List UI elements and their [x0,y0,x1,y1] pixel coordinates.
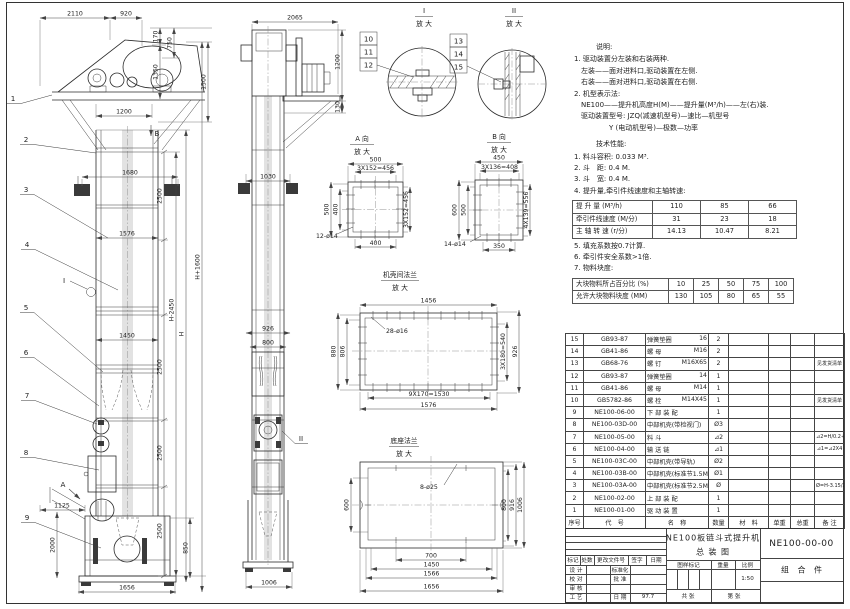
part-remark: 见发货清单 [815,358,845,370]
dim-label: 850 [183,542,190,554]
parts-row: 8 NE100-03D-00 中部机壳(带检视门) Ø3 [566,419,845,431]
part-remark [815,419,845,431]
part-total-weight [791,480,815,492]
table-row: 允许大块物料块度 (MM) 130 105 80 65 55 [573,291,794,303]
base-plate [79,576,176,582]
part-material [729,504,769,516]
parts-row: 5 NE100-03C-00 中部机壳(带导轨) Ø2 [566,455,845,467]
part-code: GB93-87 [584,370,646,382]
part-total-weight [791,504,815,516]
part-material [729,346,769,358]
part-total-weight [791,394,815,406]
part-unit-weight [769,382,791,394]
part-no: 15 [566,334,584,346]
part-unit-weight [769,419,791,431]
part-no: 5 [566,455,584,467]
hole-callout: 28-ø16 [386,328,408,335]
dim-label: 3X152=456 [403,191,410,228]
tech-list-pre: 1. 料斗容积: 0.033 M³.2. 斗 距: 0.4 M.3. 斗 宽: … [574,152,842,198]
dim-label: 800 [262,340,274,347]
part-balloon: 8 [24,448,29,457]
part-code: NE100-06-00 [584,407,646,419]
part-unit-weight [769,455,791,467]
part-code: GB5782-86 [584,394,646,406]
part-balloon: 2 [24,135,29,144]
motor [302,64,324,92]
detail-i-marker-label: I [63,276,65,285]
cell: 130 [669,291,694,303]
part-unit-weight [769,334,791,346]
part-no: 8 [566,419,584,431]
dim-label: 500 [461,204,468,216]
view-subtitle: 放 大 [392,283,408,292]
dim-label: 130 [335,101,342,113]
dim-label: 600 [344,499,351,511]
dim-label: 2500 [157,359,164,375]
dim-label: 1006 [517,497,524,513]
part-qty: Ø2 [709,455,729,467]
part-qty: 2 [709,346,729,358]
inspection-door [88,456,116,492]
table-row: 大块物料所占百分比 (%) 10 25 50 75 100 [573,278,794,290]
dim-label: 2500 [157,188,164,204]
part-material [729,443,769,455]
cell: 18 [749,213,797,225]
view-b-marker: B [155,129,160,138]
table-row: 牵引件线速度 (M/分) 31 23 18 [573,213,797,225]
role-label: 批 准 [614,575,627,583]
col-header: 代 号 [584,516,646,528]
cell: 110 [653,201,701,213]
dim-label: 1450 [424,562,440,569]
tech-line: 7. 物料块度: [574,263,842,274]
casing-flange-view: 机壳间法兰 放 大 1456 880 806 3X180=540 926 9X1… [331,270,520,411]
part-unit-weight [769,480,791,492]
part-qty: 1 [709,382,729,394]
part-name: 驱 动 装 置 [646,504,709,516]
tech-line: 3. 斗 宽: 0.4 M. [574,174,842,185]
view-a-enlarged: A 向 放 大 500 3X152=456 500 400 3X152=456 … [316,134,410,249]
note-line: 左装——面对进料口,驱动装置在左侧. [574,66,842,77]
part-name: 料 斗 [646,431,709,443]
part-qty: Ø [709,480,729,492]
note-line: 2. 机型表示法: [574,89,842,100]
dim-label: 1006 [261,580,277,587]
dim-label: 1125 [54,503,70,510]
date-value: 97.7 [642,594,654,600]
part-material [729,394,769,406]
part-name: 输 送 链 [646,443,709,455]
col-header: 数量 [709,516,729,528]
part-material [729,419,769,431]
part-no: 13 [566,358,584,370]
part-balloon: 15 [454,63,463,72]
scale-value: 1:50 [741,576,754,582]
role-label: 标准化 [612,566,629,574]
front-elevation-view: 2110 920 170 1350 750 1500 1200 1680 157… [7,11,212,595]
tech-line: 4. 提升量,牵引件线速度和主轴转速: [574,186,842,197]
dim-label: 3X152=456 [357,165,394,172]
part-no: 9 [566,407,584,419]
dim-label: 880 [331,346,338,358]
stamp-header: 重量 [717,561,728,569]
lump-size-table: 大块物料所占百分比 (%) 10 25 50 75 100 允许大块物料块度 (… [572,278,794,304]
dim-label: 1200 [116,109,132,116]
view-subtitle: 放 大 [396,449,412,458]
dim-label: 2065 [287,15,303,22]
part-material [729,334,769,346]
performance-table: 提 升 量 (M³/h) 110 85 66 牵引件线速度 (M/分) 31 2… [572,200,797,238]
bearing [241,45,252,61]
part-name: 中部机壳(带检视门) [646,419,709,431]
part-total-weight [791,407,815,419]
role-label: 审 核 [570,584,583,592]
detail-subtitle: 放 大 [506,19,522,28]
part-balloon: 7 [25,391,30,400]
part-remark [815,407,845,419]
part-total-weight [791,419,815,431]
hole-callout: 12-ø14 [316,233,338,240]
part-total-weight [791,358,815,370]
detail-view-i: I 放 大 10 11 12 [360,6,458,118]
part-material [729,431,769,443]
part-total-weight [791,370,815,382]
part-remark [815,346,845,358]
part-remark [815,382,845,394]
cell: 50 [719,278,744,290]
part-name: 中部机壳(标准节2.5M) [646,480,709,492]
part-remark [815,492,845,504]
head-hood-outline [52,40,205,100]
parts-row: 1 NE100-01-00 驱 动 装 置 1 [566,504,845,516]
boot-wheel [90,499,114,521]
cell: 25 [694,278,719,290]
dim-label: 700 [425,553,437,560]
part-total-weight [791,455,815,467]
platform [283,96,340,101]
dim-label: 1576 [421,402,437,409]
part-balloon: 12 [364,61,373,70]
col-header: 序号 [566,516,584,528]
flange-outline [360,313,497,390]
part-material [729,407,769,419]
col-header: 备 注 [815,516,845,528]
bolt-ticks [365,465,498,543]
drawing-subtitle: 总 装 图 [696,547,730,558]
parts-row: 7 NE100-05-00 料 斗 ⊿2 ⊿2=H/0.2+5.75 [566,431,845,443]
dim-label: 1656 [424,584,440,591]
drawing-canvas: 2110 920 170 1350 750 1500 1200 1680 157… [0,0,565,609]
parts-row: 10 GB5782-86 螺 栓M14X45 1 见发货清单 [566,394,845,406]
dim-label: 500 [324,204,331,216]
dim-label: 750 [167,37,174,49]
part-type: 组 合 件 [781,564,825,575]
part-balloon: 6 [24,348,29,357]
cell: 23 [701,213,749,225]
part-unit-weight [769,504,791,516]
dim-label: 9X170=1530 [409,391,450,398]
dim-label: 1566 [424,571,440,578]
wall-bracket [164,184,180,196]
part-name: 下 部 装 配 [646,407,709,419]
part-code: GB68-76 [584,358,646,370]
part-total-weight [791,468,815,480]
dim-label: 1456 [421,298,437,305]
part-total-weight [791,334,815,346]
part-unit-weight [769,468,791,480]
parts-row: 13 GB68-76 螺 钉M16X65 2 见发货清单 [566,358,845,370]
cell: 66 [749,201,797,213]
rev-header: 处数 [581,556,592,564]
dim-label: 2500 [157,523,164,539]
dim-label: H-2450 [169,299,176,322]
row-label: 允许大块物料块度 (MM) [573,291,669,303]
parts-row: 11 GB41-86 螺 母M14 1 [566,382,845,394]
rev-header: 日期 [650,556,661,564]
part-balloon: 5 [24,303,29,312]
note-line: 右装——面对进料口,驱动装置在右侧. [574,77,842,88]
dim-label: 1576 [119,231,135,238]
parts-row: 12 GB93-87 弹簧垫圈14 1 [566,370,845,382]
dim-label: 350 [493,243,505,250]
col-header: 单重 [769,516,791,528]
part-code: NE100-03D-00 [584,419,646,431]
detail-title: II [512,6,516,15]
sheet-count: 共 张 [682,592,695,600]
boot-sprocket [114,536,140,562]
dim-label: 500 [370,157,382,164]
hole-callout: 8-ø25 [420,484,438,491]
table-row: 主 轴 转 速 (r/分) 14.13 10.47 8.21 [573,226,797,238]
tech-list-post: 5. 填充系数按0.7计算.6. 牵引件安全系数>1倍.7. 物料块度: [574,241,842,275]
part-code: GB41-86 [584,382,646,394]
part-total-weight [791,431,815,443]
part-unit-weight [769,358,791,370]
view-title: 机壳间法兰 [383,270,417,279]
stamp-header: 图样标记 [677,561,699,569]
part-remark [815,504,845,516]
part-total-weight [791,492,815,504]
view-title: A 向 [355,134,369,143]
head-casing [252,30,286,96]
part-name: 螺 钉M16X65 [646,358,709,370]
dim-label: 2110 [67,11,83,18]
row-label: 主 轴 转 速 (r/分) [573,226,653,238]
view-title: B 向 [492,132,506,141]
tech-line: 2. 斗 距: 0.4 M. [574,163,842,174]
notes-heading: 说明: [596,42,842,53]
bearing [286,45,297,61]
row-label: 大块物料所占百分比 (%) [573,278,669,290]
part-qty: 2 [709,358,729,370]
view-a-marker: A [61,480,66,489]
role-label: 校 对 [570,575,583,583]
part-qty: 1 [709,504,729,516]
part-code: NE100-03A-00 [584,480,646,492]
part-balloon: 14 [454,50,464,59]
drawing-number: NE100-00-00 [769,539,834,549]
note-line: 驱动装置型号: JZQ(减速机型号)—速比—机型号 [574,111,842,122]
detail-subtitle: 放 大 [416,19,432,28]
dim-label: 1030 [260,174,276,181]
part-code: NE100-02-00 [584,492,646,504]
row-label: 牵引件线速度 (M/分) [573,213,653,225]
part-name: 中部机壳(标准节1.5M,1M) [646,468,709,480]
parts-row: 15 GB93-87 弹簧垫圈16 2 [566,334,845,346]
part-material [729,370,769,382]
gearbox-wheel [88,69,106,87]
part-no: 12 [566,370,584,382]
part-material [729,480,769,492]
part-qty: 1 [709,407,729,419]
part-qty: 2 [709,334,729,346]
part-name: 螺 母M14 [646,382,709,394]
dim-label: 400 [333,204,340,216]
table-row: 提 升 量 (M³/h) 110 85 66 [573,201,797,213]
part-remark: Ø=H-3.15/2.5 [815,480,845,492]
dim-label: 926 [512,346,519,358]
part-no: 4 [566,468,584,480]
view-subtitle: 放 大 [491,145,507,154]
parts-row: 4 NE100-03B-00 中部机壳(标准节1.5M,1M) Ø1 [566,468,845,480]
part-code: NE100-03C-00 [584,455,646,467]
part-code: NE100-04-00 [584,443,646,455]
drawing-sheet: 2110 920 170 1350 750 1500 1200 1680 157… [0,0,850,609]
notes-panel: 说明: 1. 驱动装置分左装和右装两种. 左装——面对进料口,驱动装置在左侧. … [574,42,842,306]
dim-label: 4X139=556 [523,191,530,228]
notes-list: 1. 驱动装置分左装和右装两种. 左装——面对进料口,驱动装置在左侧. 右装——… [574,54,842,134]
sheet-number: 第 张 [728,592,741,600]
part-code: GB41-86 [584,346,646,358]
part-total-weight [791,382,815,394]
part-name: 弹簧垫圈16 [646,334,709,346]
cell: 75 [744,278,769,290]
rev-header: 签字 [631,556,642,564]
gearbox-wheel [110,73,124,87]
cell: 65 [744,291,769,303]
view-b-enlarged: B 向 放 大 450 3X136=408 600 500 4X139=556 … [444,132,531,252]
part-balloon: 13 [454,37,463,46]
dim-label: 1656 [119,585,135,592]
dim-label: 1450 [119,333,135,340]
hatch [505,54,520,100]
part-balloon: 3 [24,185,29,194]
wall-bracket [238,183,250,194]
part-unit-weight [769,394,791,406]
tech-line: 1. 料斗容积: 0.033 M³. [574,152,842,163]
role-label: 设 计 [570,566,583,574]
row-label: 提 升 量 (M³/h) [573,201,653,213]
tech-line: 6. 牵引件安全系数>1倍. [574,252,842,263]
dim-label: 170 [153,31,160,43]
tech-line: 5. 填充系数按0.7计算. [574,241,842,252]
part-material [729,468,769,480]
part-remark [815,334,845,346]
cell: 55 [769,291,794,303]
detail-ii-marker-label: II [299,434,303,443]
note-line: Y (电动机型号)—极数—功率 [574,123,842,134]
part-material [729,382,769,394]
detail-i-marker [87,288,96,297]
bolt-ticks [358,311,499,392]
dim-label: 2500 [157,445,164,461]
part-qty: Ø1 [709,468,729,480]
note-line: 1. 驱动装置分左装和右装两种. [574,54,842,65]
stamp-header: 比例 [742,561,753,569]
part-no: 1 [566,504,584,516]
dim-label: 600 [452,204,459,216]
dim-label: 2000 [50,537,57,553]
col-header: 材 料 [729,516,769,528]
cell: 10.47 [701,226,749,238]
title-block: 标记 处数 更改文件号 签字 日期 设 计 校 对 审 核 工 艺 标准化 批 … [565,528,844,603]
cell: 14.13 [653,226,701,238]
wall-bracket [286,183,298,194]
dim-label: H [179,331,186,336]
note-line: NE100——提升机高度H(M)——提升量(M³/h)——左(右)装. [574,100,842,111]
part-remark: ⊿2=H/0.2+5.75 [815,431,845,443]
detail-title: I [423,6,425,15]
part-name: 弹簧垫圈14 [646,370,709,382]
col-header: 名 称 [646,516,709,528]
parts-header-row: 序号 代 号 名 称 数量 材 料 单重 总重 备 注 [566,516,845,528]
part-qty: 1 [709,492,729,504]
part-qty: 1 [709,394,729,406]
cell: 8.21 [749,226,797,238]
part-name: 上 部 装 配 [646,492,709,504]
part-name: 螺 栓M14X45 [646,394,709,406]
part-balloon: 11 [364,48,373,57]
part-unit-weight [769,443,791,455]
parts-row: 2 NE100-02-00 上 部 装 配 1 [566,492,845,504]
dim-label: 920 [120,11,132,18]
part-balloon: 4 [25,240,30,249]
view-subtitle: 放 大 [354,147,370,156]
part-remark [815,455,845,467]
cell: 105 [694,291,719,303]
part-balloon: 9 [25,513,30,522]
parts-list-table: 15 GB93-87 弹簧垫圈16 2 14 GB41-86 螺 母M16 2 … [565,333,845,529]
part-balloon: 1 [11,94,16,103]
detail-view-ii: II 放 大 13 14 15 [450,6,546,120]
part-unit-weight [769,431,791,443]
cell: 10 [669,278,694,290]
part-name: 螺 母M16 [646,346,709,358]
platform-brace [283,101,338,148]
part-balloon: 10 [364,35,374,44]
part-material [729,358,769,370]
dim-label: 450 [493,155,505,162]
cell: 31 [653,213,701,225]
role-label: 日 期 [614,593,627,601]
bolt [416,70,429,76]
part-qty: Ø3 [709,419,729,431]
dim-label: 926 [262,326,274,333]
drawing-title: NE100板链斗式提升机 [666,533,760,544]
cell: 80 [719,291,744,303]
part-qty: ⊿1 [709,443,729,455]
hole-callout: 14-ø14 [444,241,466,248]
part-no: 6 [566,443,584,455]
part-no: 2 [566,492,584,504]
dim-label: 1200 [335,54,342,70]
base-flange-view: 底座法兰 放 大 600 800 916 1006 700 1450 1566 … [344,436,525,593]
view-title: 底座法兰 [390,436,417,445]
part-unit-weight [769,407,791,419]
part-unit-weight [769,492,791,504]
part-code: NE100-01-00 [584,504,646,516]
dim-label: 400 [370,240,382,247]
